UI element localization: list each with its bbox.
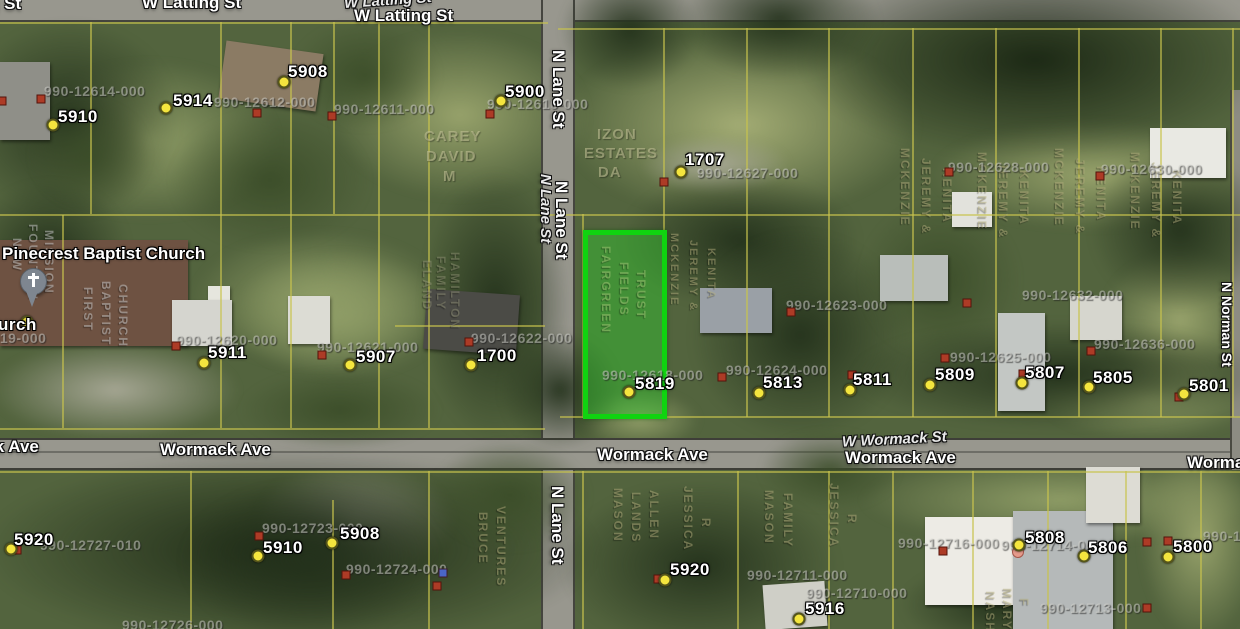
church-pin-icon[interactable]	[20, 268, 47, 295]
address-label: 5809	[935, 365, 975, 385]
address-label: 5914	[173, 91, 213, 111]
address-label: 5910	[58, 107, 98, 127]
address-label: 5916	[805, 599, 845, 619]
address-label: 5819	[635, 374, 675, 394]
address-label: 5908	[340, 524, 380, 544]
parcel-map-viewport[interactable]: CAREYDAVIDMIZONESTATESDAMCKENZIEJEREMY &…	[0, 0, 1240, 629]
address-label: 5911	[208, 343, 247, 363]
address-point-dot[interactable]	[465, 359, 478, 372]
address-label: urch	[0, 315, 37, 335]
address-point-dot[interactable]	[344, 359, 357, 372]
address-label: 5920	[670, 560, 710, 580]
address-label: 5908	[288, 62, 328, 82]
address-label: 5806	[1088, 538, 1128, 558]
address-point-dot[interactable]	[1013, 539, 1026, 552]
address-label: 5811	[853, 370, 892, 390]
cross-icon	[32, 273, 35, 287]
address-point-dot[interactable]	[326, 537, 339, 550]
address-markers-layer: 5910 5914 5908 5900 1707 5911 5907 1700 …	[0, 0, 1240, 629]
address-label: 1700	[477, 346, 517, 366]
address-label: 5808	[1025, 528, 1065, 548]
address-label: 5910	[263, 538, 303, 558]
address-label: 5907	[356, 347, 396, 367]
address-label: 5813	[763, 373, 803, 393]
address-label: 5900	[505, 82, 545, 102]
address-point-dot[interactable]	[623, 386, 636, 399]
church-poi-label[interactable]: Pinecrest Baptist Church	[2, 244, 205, 264]
address-label: 1707	[685, 150, 725, 170]
address-point-dot[interactable]	[160, 102, 173, 115]
address-label: 5807	[1025, 363, 1065, 383]
address-label: 5800	[1173, 537, 1213, 557]
address-point-dot[interactable]	[793, 613, 806, 626]
address-label: 5805	[1093, 368, 1133, 388]
address-label: 5920	[14, 530, 54, 550]
address-label: 5801	[1189, 376, 1229, 396]
